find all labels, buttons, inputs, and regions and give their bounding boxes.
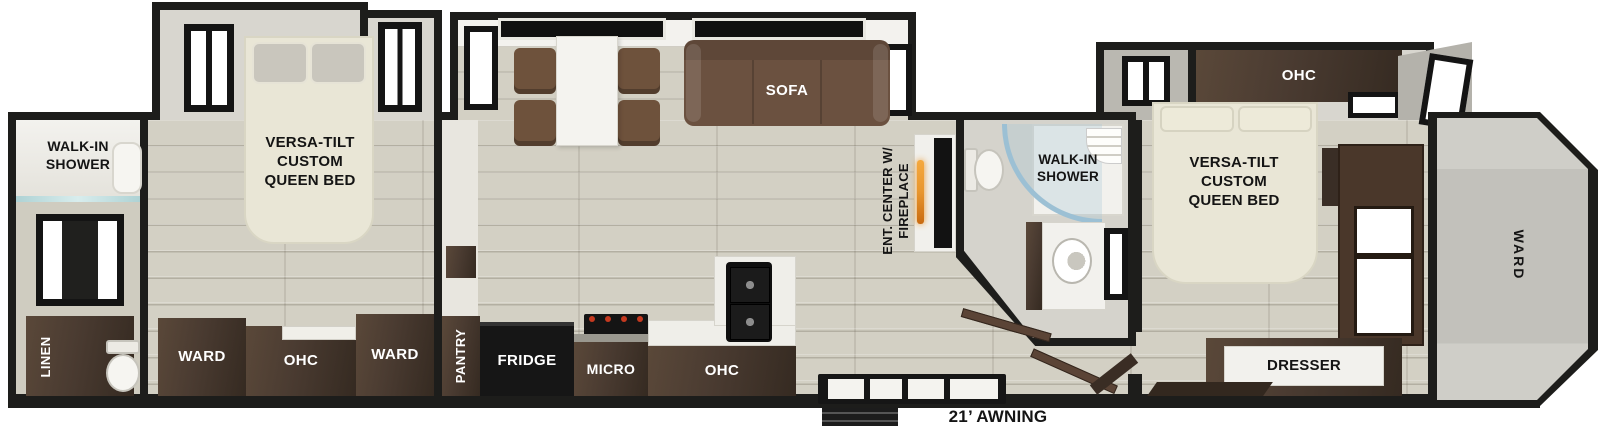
- rear-shower-glass: [16, 196, 140, 202]
- rv-floorplan: WALK-IN SHOWER LINEN VERSA-TILT CUSTOM Q…: [0, 0, 1600, 428]
- front-bed-label: VERSA-TILT CUSTOM QUEEN BED: [1176, 154, 1292, 210]
- dinette-chair-tl: [514, 48, 556, 94]
- fireplace-flame: [917, 160, 924, 224]
- burner-knob: [637, 316, 643, 322]
- kitchen-ohc: OHC: [648, 346, 796, 396]
- kitchen-sink: [726, 262, 772, 342]
- front-bed-pillow-right: [1238, 106, 1312, 132]
- fridge: FRIDGE: [480, 322, 574, 396]
- window-pane-upper: [1354, 206, 1414, 256]
- front-bedroom-wall: [1128, 120, 1142, 332]
- rear-toilet: [104, 340, 142, 394]
- micro-counter-edge: [574, 334, 648, 342]
- outside-step-box: [822, 408, 898, 426]
- linen-label: LINEN: [35, 322, 57, 392]
- ent-center-label: ENT. CENTER W/ FIREPLACE: [876, 141, 916, 261]
- front-ward-label: WARD: [1507, 215, 1529, 295]
- step-tread: [950, 379, 998, 399]
- rear-bed-window: [184, 24, 234, 112]
- rear-ward-left: WARD: [158, 318, 246, 396]
- mid-shower-label: WALK-IN SHOWER: [1022, 152, 1114, 186]
- living-slide-window-left: [464, 26, 498, 110]
- dinette-chair-tr: [618, 48, 660, 94]
- pantry-label: PANTRY: [451, 319, 471, 393]
- rear-toilet-bowl: [106, 354, 140, 392]
- burner-knob: [605, 316, 611, 322]
- rear-ohc-shelf: [282, 326, 356, 340]
- vanity-cabinet: [1026, 222, 1042, 310]
- rear-ward-right: WARD: [356, 314, 434, 396]
- dresser-top: DRESSER: [1224, 346, 1384, 386]
- front-bedroom-wall-stub: [1128, 374, 1142, 400]
- mid-toilet-bowl: [974, 149, 1004, 191]
- bed-foot-bench: [1147, 382, 1273, 396]
- living-left-wall-panel: [442, 120, 478, 320]
- entry-steps: [818, 374, 1006, 404]
- dresser-label: DRESSER: [1267, 357, 1341, 376]
- rear-bed-pillow-right: [310, 42, 366, 84]
- step-tread: [870, 379, 902, 399]
- dinette-chair-bl: [514, 100, 556, 146]
- rear-ohc-label: OHC: [284, 352, 319, 369]
- vanity-sink: [1052, 238, 1092, 284]
- rear-bedroom-side-window: [378, 22, 422, 112]
- rear-ward-right-label: WARD: [371, 346, 418, 363]
- rear-toilet-tank: [106, 340, 140, 354]
- rear-bed-pillow-left: [252, 42, 308, 84]
- mid-bath-window: [1104, 228, 1128, 300]
- dinette-table: [556, 36, 618, 146]
- front-bedroom-left-window: [1122, 56, 1170, 106]
- rear-bed-label: VERSA-TILT CUSTOM QUEEN BED: [252, 134, 368, 190]
- dinette-chair-br: [618, 100, 660, 146]
- bottom-exterior-wall: [8, 394, 1540, 408]
- window-pane-lower: [1354, 256, 1414, 336]
- ent-center-tv: [934, 138, 952, 248]
- kitchen-ohc-label: OHC: [705, 362, 740, 379]
- burner-knob: [589, 316, 595, 322]
- rear-bath-window: [36, 214, 124, 306]
- skylight-window-right: [692, 18, 866, 40]
- step-tread: [908, 379, 944, 399]
- micro-label: MICRO: [587, 361, 636, 377]
- sink-basin-bottom: [730, 304, 770, 340]
- rear-shower-label: WALK-IN SHOWER: [35, 138, 121, 173]
- sofa-label: SOFA: [684, 82, 890, 99]
- mid-toilet: [964, 146, 1002, 190]
- front-bed-pillow-left: [1160, 106, 1234, 132]
- front-ohc-label: OHC: [1282, 67, 1317, 84]
- rear-ward-left-label: WARD: [178, 348, 225, 365]
- sofa-back-cushion: [684, 40, 890, 60]
- awning-label: 21’ AWNING: [898, 406, 1098, 427]
- front-slide-window: [1348, 92, 1400, 118]
- burner-knob: [621, 316, 627, 322]
- sofa: SOFA: [684, 40, 890, 126]
- front-bedroom-window-wall: [1338, 144, 1424, 346]
- micro-cabinet: MICRO: [574, 342, 648, 396]
- wall-cubby: [446, 246, 476, 278]
- fridge-label: FRIDGE: [497, 352, 556, 369]
- sink-basin-top: [730, 267, 770, 303]
- step-tread: [828, 379, 864, 399]
